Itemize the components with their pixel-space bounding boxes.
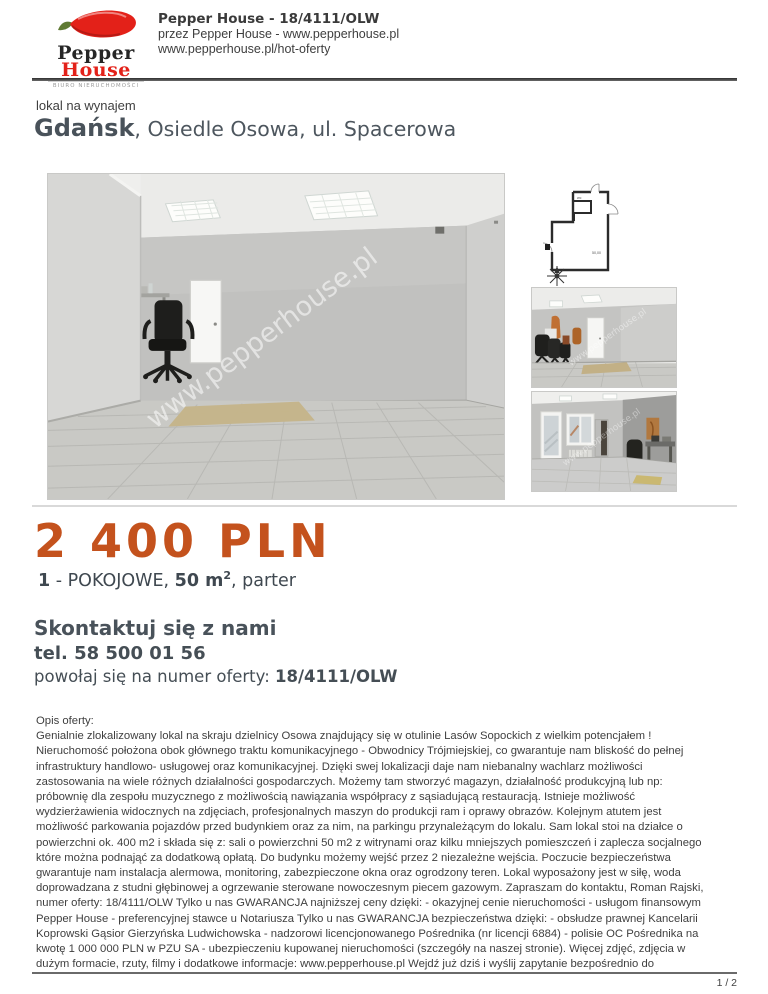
- main-photo: www.pepperhouse.pl: [47, 173, 505, 500]
- floor-plan: wc 50,00: [531, 173, 677, 287]
- offer-ref-label: powołaj się na numer oferty:: [34, 667, 275, 686]
- description-label: Opis oferty:: [36, 714, 748, 729]
- photo-small-2: www.pepperhouse.pl: [531, 391, 677, 492]
- header-divider: [32, 78, 737, 81]
- plan-area-label: 50,00: [592, 251, 601, 255]
- compass-icon: [547, 266, 567, 286]
- footer-divider: [32, 972, 737, 974]
- contact-heading: Skontaktuj się z nami: [34, 616, 276, 640]
- rooms-count: 1: [38, 571, 50, 591]
- photo-small-2-image: www.pepperhouse.pl: [532, 392, 676, 491]
- offer-document-page: Pepper House BIURO NIERUCHOMOŚCI Pepper …: [0, 0, 768, 994]
- description-body: Genialnie zlokalizowany lokal na skraju …: [36, 729, 748, 972]
- rooms-suffix: - POKOJOWE,: [50, 571, 174, 591]
- price: 2 400 PLN: [34, 514, 332, 568]
- header-url: www.pepperhouse.pl/hot-oferty: [158, 42, 399, 57]
- page-title: Gdańsk, Osiedle Osowa, ul. Spacerowa: [34, 114, 456, 142]
- photo-small-1: www.pepperhouse.pl: [531, 287, 677, 388]
- area-value: 50 m2: [175, 571, 231, 591]
- phone-number: tel. 58 500 01 56: [34, 643, 206, 664]
- header-byline: przez Pepper House - www.pepperhouse.pl: [158, 27, 399, 42]
- listing-type-label: lokal na wynajem: [36, 98, 136, 113]
- floor-info: , parter: [231, 571, 296, 591]
- section-divider: [32, 505, 737, 507]
- description: Opis oferty: Genialnie zlokalizowany lok…: [36, 714, 748, 972]
- header-title: Pepper House - 18/4111/OLW: [158, 12, 399, 27]
- logo-tagline: BIURO NIERUCHOMOŚCI: [48, 81, 144, 89]
- location-rest: , Osiedle Osowa, ul. Spacerowa: [134, 117, 456, 141]
- header-info: Pepper House - 18/4111/OLW przez Pepper …: [158, 12, 399, 56]
- floor-plan-drawing: wc 50,00: [531, 173, 677, 287]
- main-photo-image: www.pepperhouse.pl: [48, 174, 504, 499]
- offer-reference: powołaj się na numer oferty: 18/4111/OLW: [34, 667, 397, 686]
- location-city: Gdańsk: [34, 114, 134, 142]
- offer-number: 18/4111/OLW: [275, 667, 397, 686]
- plan-room-label: wc: [577, 196, 582, 200]
- logo-brand-bottom: House: [48, 62, 144, 79]
- photo-small-1-image: www.pepperhouse.pl: [532, 288, 676, 387]
- page-number: 1 / 2: [717, 977, 737, 989]
- chili-pepper-icon: [52, 8, 140, 44]
- pepper-house-logo: Pepper House BIURO NIERUCHOMOŚCI: [48, 8, 144, 82]
- specs-line: 1 - POKOJOWE, 50 m2, parter: [38, 569, 296, 591]
